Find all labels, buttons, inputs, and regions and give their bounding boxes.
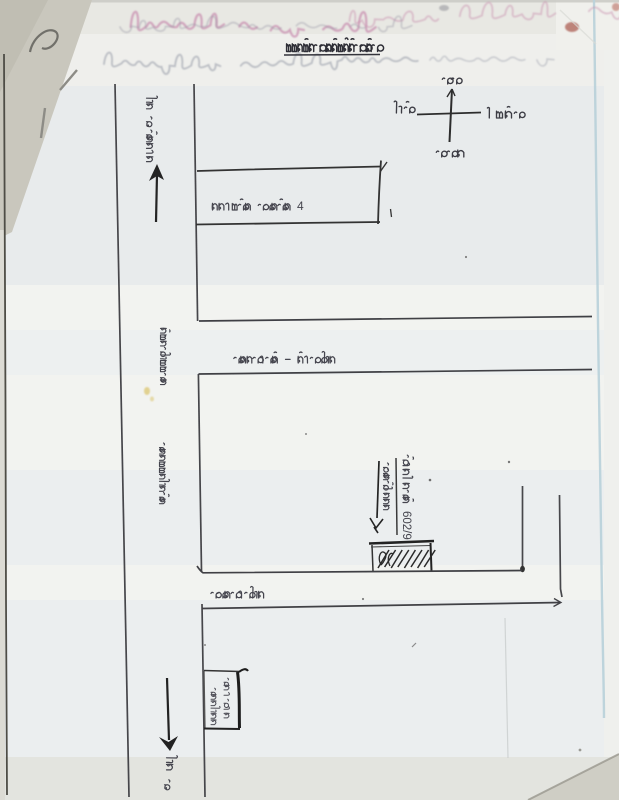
svg-text:4: 4 xyxy=(297,199,304,213)
svg-text:602/9: 602/9 xyxy=(400,511,412,540)
